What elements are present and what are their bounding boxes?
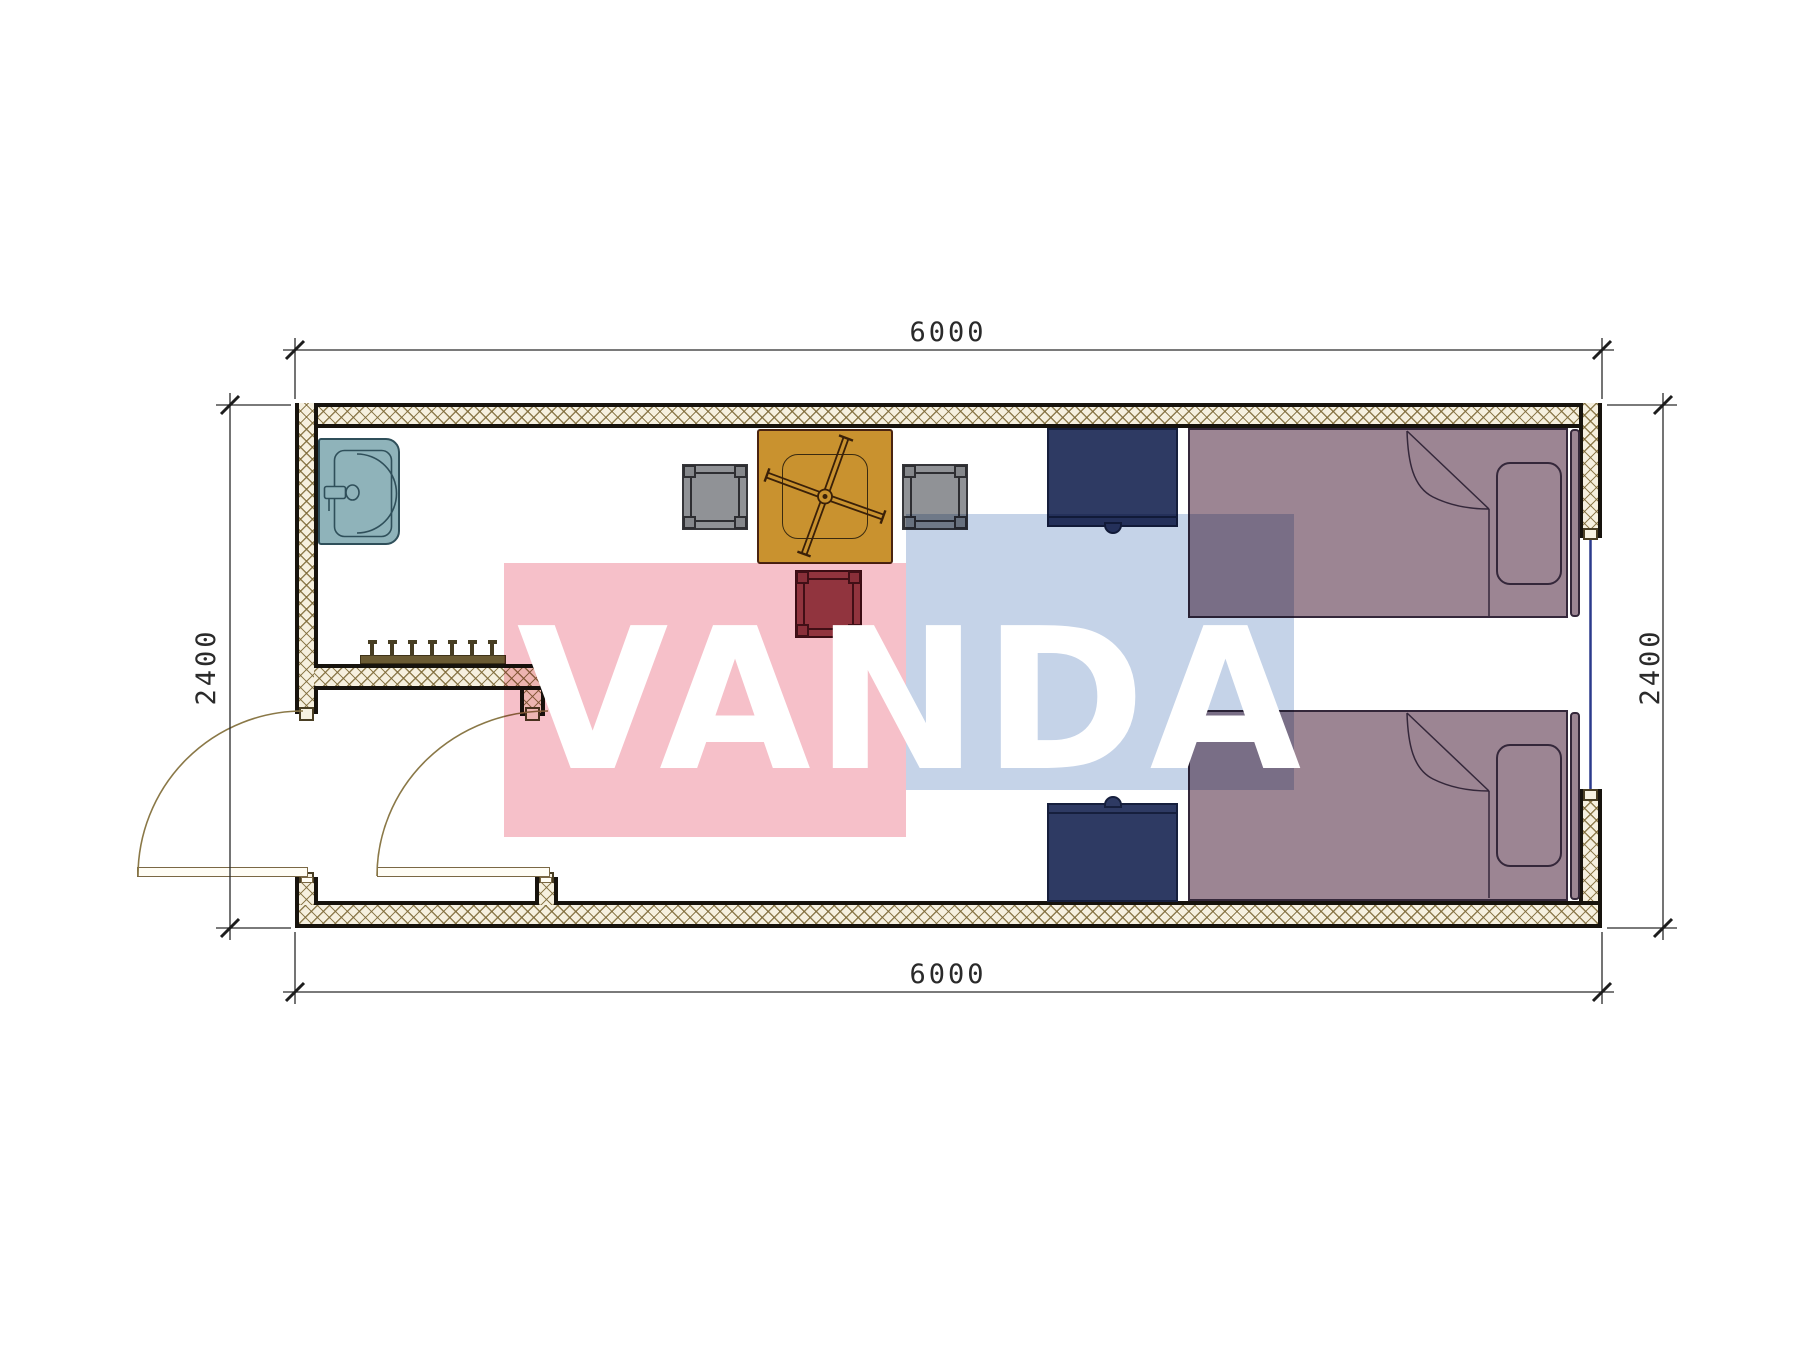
dim-top: 6000 [878, 318, 1018, 348]
dim-bottom: 6000 [878, 960, 1018, 990]
table-fan-icon [765, 435, 886, 556]
dim-left: 2400 [192, 597, 222, 737]
bed-fold-lines [1407, 431, 1489, 898]
dim-right: 2400 [1636, 597, 1666, 737]
floor-plan-canvas: 6000 6000 2400 2400 VANDA [0, 0, 1800, 1350]
watermark-text: VANDA [511, 571, 1311, 831]
sink-detail [325, 451, 397, 537]
